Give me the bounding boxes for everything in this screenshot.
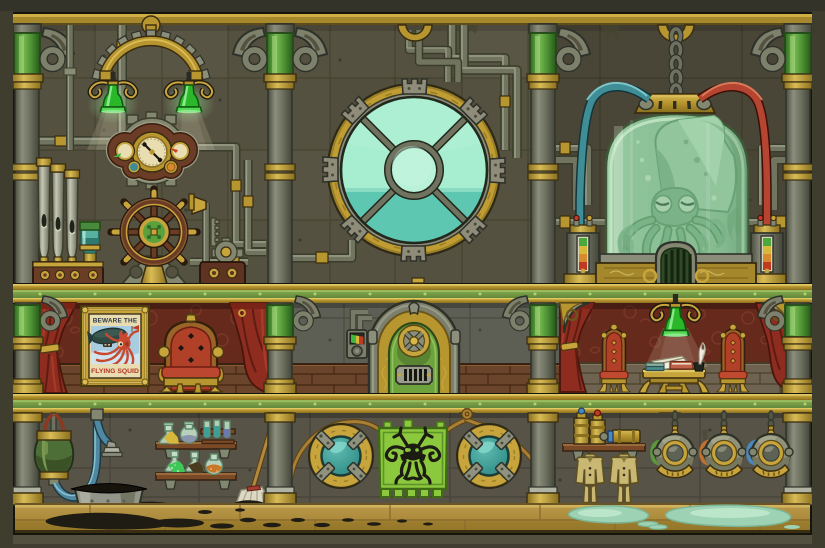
svg-text:BEWARE THE: BEWARE THE (93, 318, 138, 325)
svg-text:FLYING SQUID: FLYING SQUID (91, 368, 139, 375)
